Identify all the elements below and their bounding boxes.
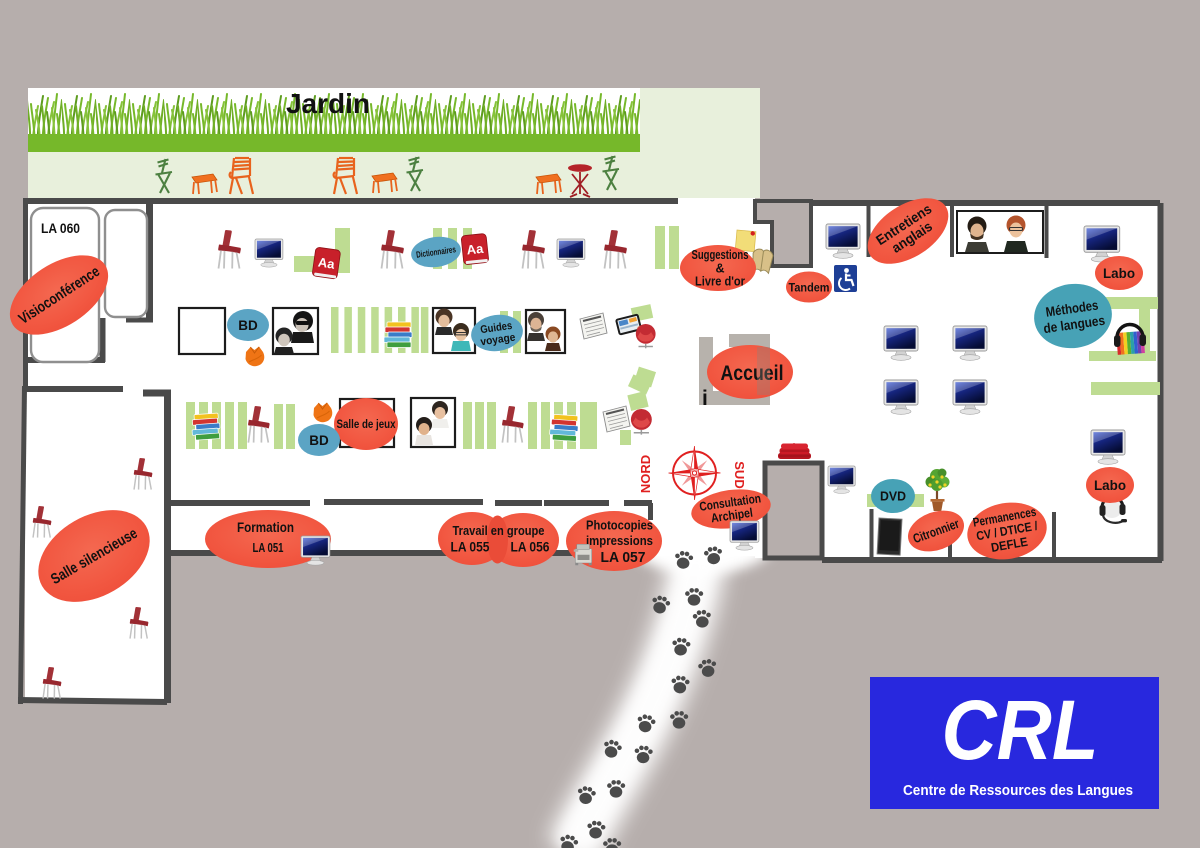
svg-text:Accueil: Accueil (721, 362, 784, 385)
svg-text:impressions: impressions (586, 533, 653, 548)
svg-text:SUD: SUD (732, 461, 747, 488)
svg-text:LA 055: LA 055 (451, 539, 490, 555)
svg-text:i: i (702, 387, 708, 410)
svg-text:CRL: CRL (942, 683, 1099, 777)
svg-text:Jardin: Jardin (286, 88, 370, 119)
svg-text:Photocopies: Photocopies (586, 518, 653, 533)
svg-text:LA 057: LA 057 (601, 549, 646, 566)
svg-text:Travail en groupe: Travail en groupe (453, 523, 545, 538)
svg-text:BD: BD (309, 433, 329, 448)
svg-text:Salle de jeux: Salle de jeux (337, 417, 396, 431)
svg-text:Labo: Labo (1103, 266, 1135, 281)
svg-text:Livre d'or: Livre d'or (695, 275, 745, 289)
svg-text:Suggestions: Suggestions (692, 248, 749, 262)
svg-text:DVD: DVD (880, 489, 906, 504)
svg-text:BD: BD (238, 318, 258, 333)
svg-text:Tandem: Tandem (789, 283, 830, 295)
svg-text:Centre de Ressources des Langu: Centre de Ressources des Langues (903, 783, 1133, 799)
svg-text:&: & (715, 262, 724, 276)
svg-text:NORD: NORD (638, 455, 653, 493)
svg-text:LA 051: LA 051 (253, 540, 284, 555)
svg-text:Labo: Labo (1094, 478, 1126, 493)
svg-text:LA 056: LA 056 (511, 539, 550, 555)
svg-text:LA 060: LA 060 (41, 220, 80, 236)
svg-text:Formation: Formation (237, 519, 294, 535)
